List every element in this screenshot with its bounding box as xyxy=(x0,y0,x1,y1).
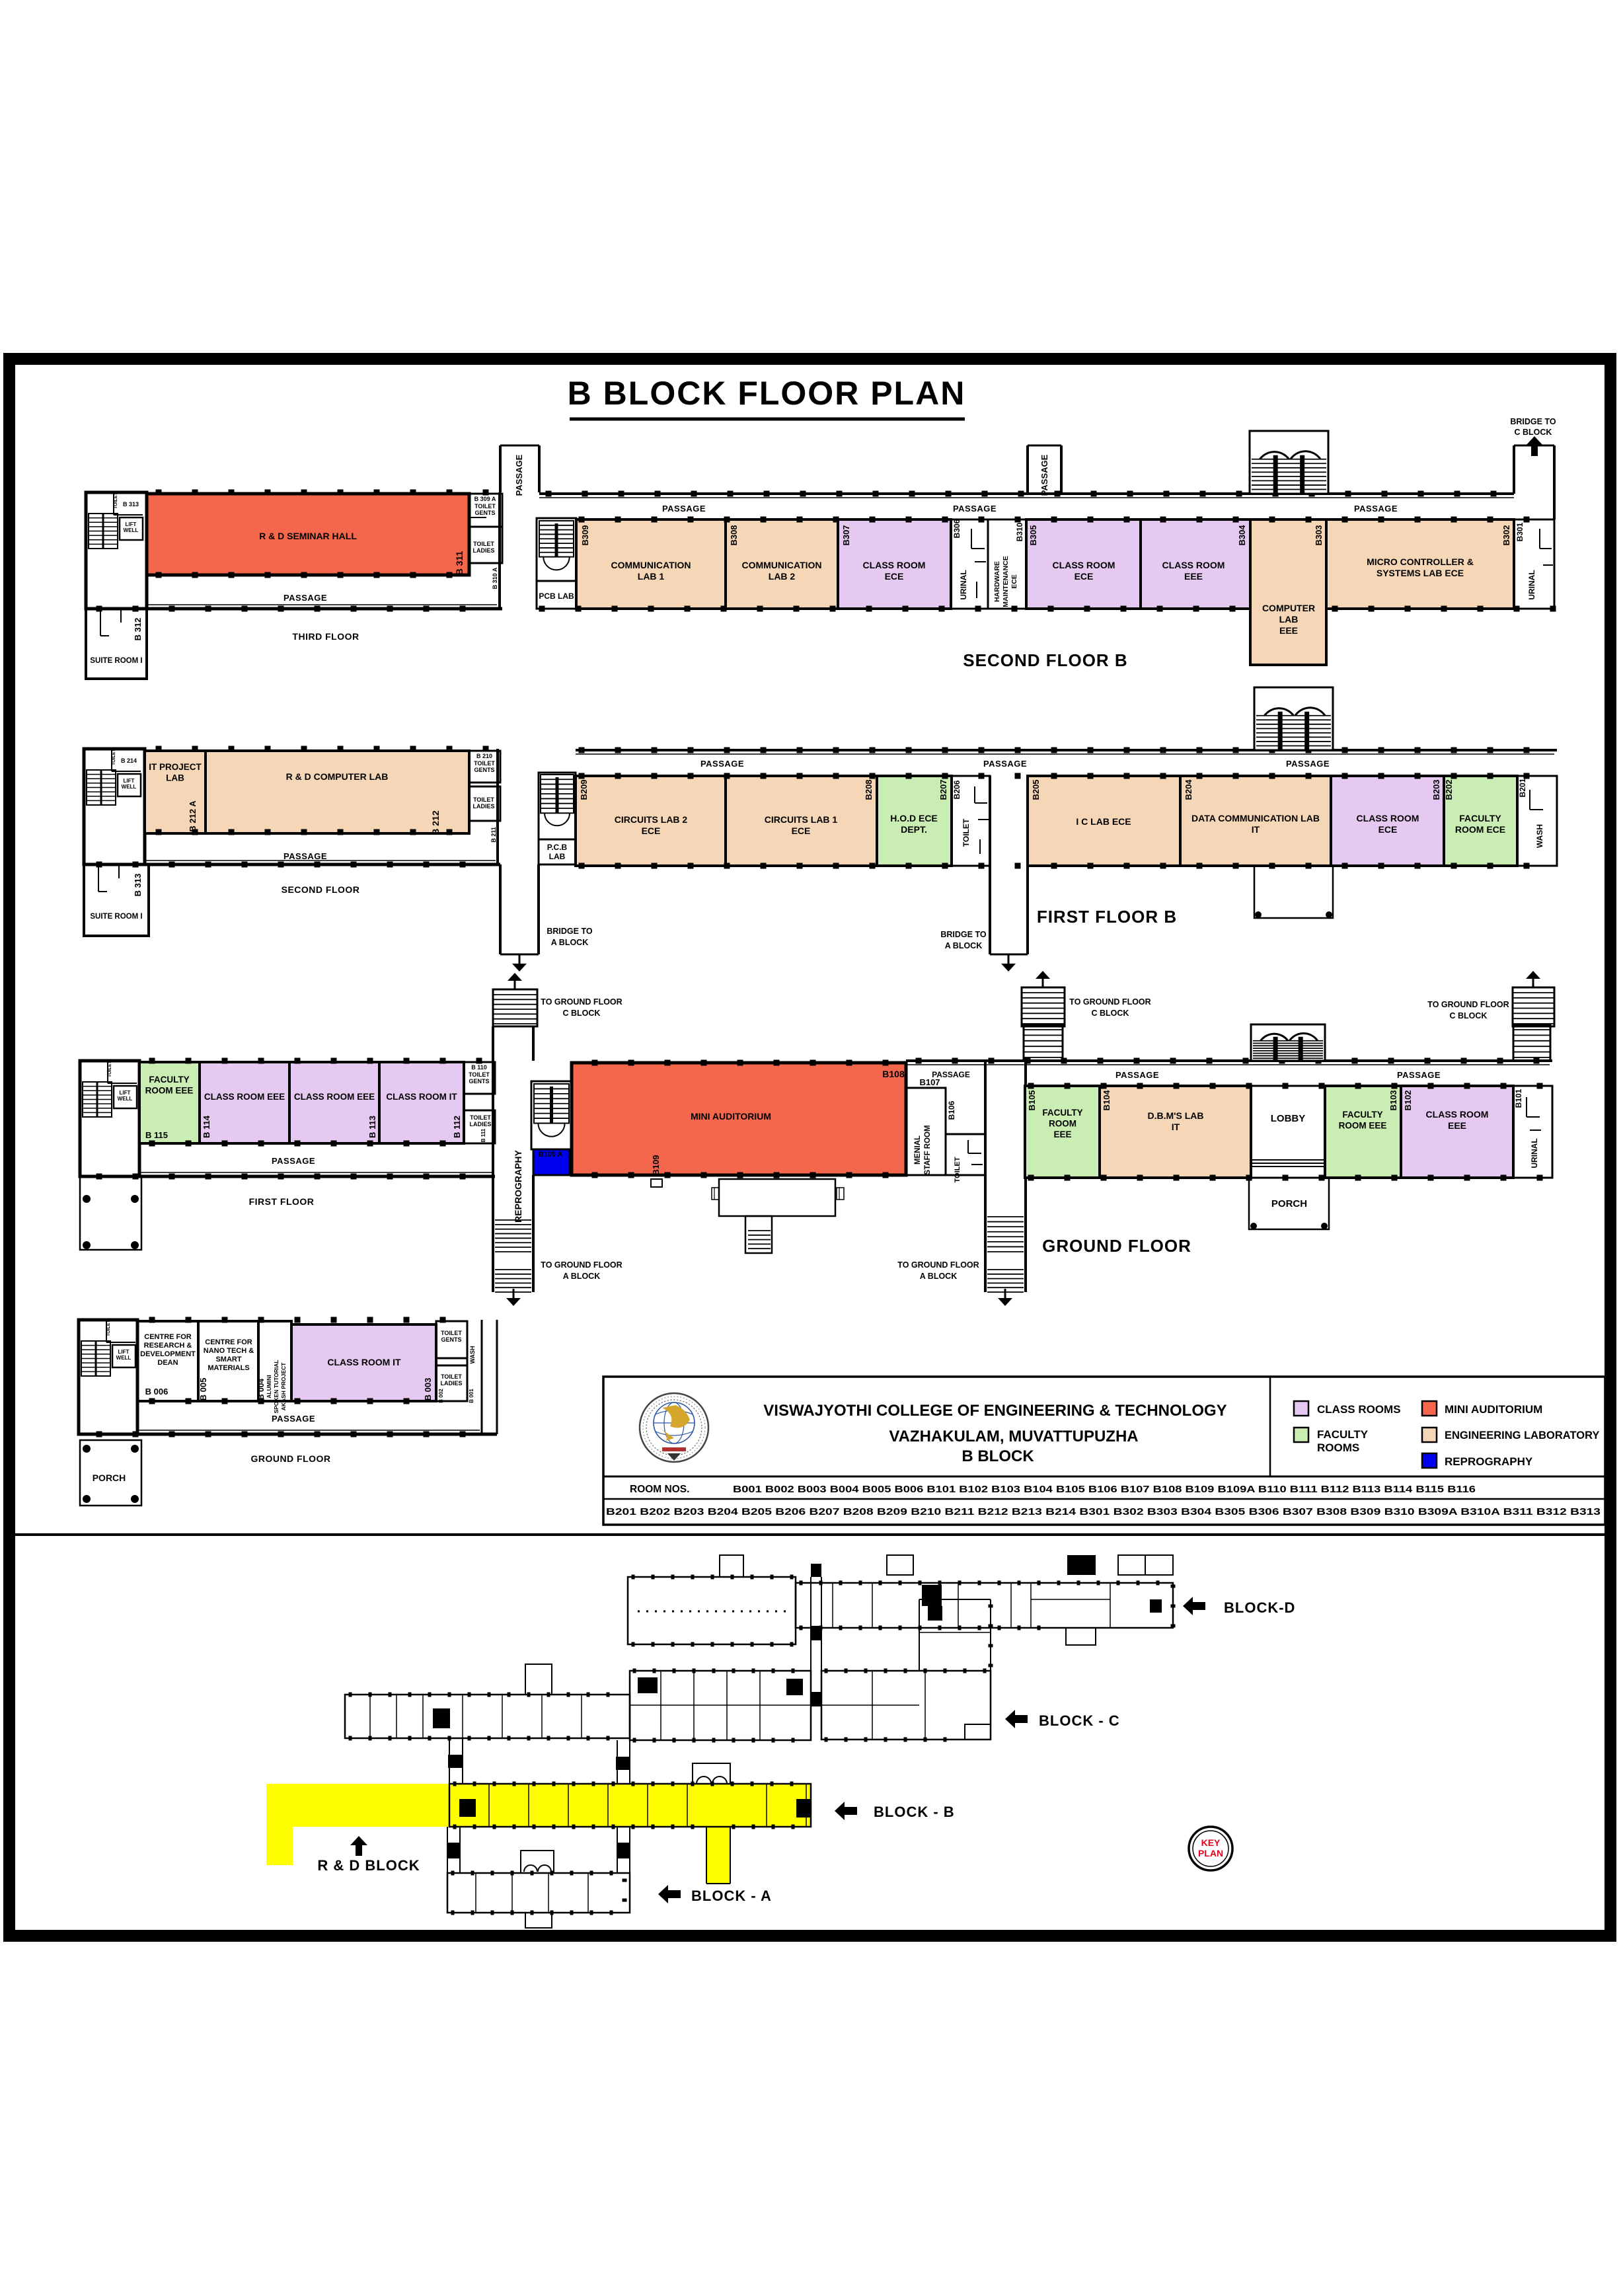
svg-text:PASSAGE: PASSAGE xyxy=(272,1414,315,1424)
svg-text:TOILET: TOILET xyxy=(962,818,971,847)
svg-text:WELL: WELL xyxy=(118,1096,133,1102)
svg-text:ROOM NOS.: ROOM NOS. xyxy=(630,1484,689,1495)
svg-text:TOILET: TOILET xyxy=(473,541,494,547)
svg-text:B309: B309 xyxy=(580,525,590,545)
svg-text:B 309 A: B 309 A xyxy=(474,496,496,502)
svg-text:ECE: ECE xyxy=(885,571,904,582)
svg-text:BLOCK-D: BLOCK-D xyxy=(1224,1599,1295,1616)
svg-text:DEPT.: DEPT. xyxy=(901,824,927,835)
svg-text:TOILET: TOILET xyxy=(114,492,118,509)
svg-text:PASSAGE: PASSAGE xyxy=(1115,1070,1159,1080)
svg-text:BRIDGE TO: BRIDGE TO xyxy=(547,927,592,936)
svg-text:B201 B202 B203 B204 B205: B201 B202 B203 B204 B205 B206 B207 B208 … xyxy=(606,1506,1601,1517)
svg-text:GROUND FLOOR: GROUND FLOOR xyxy=(1042,1236,1191,1256)
svg-text:GENTS: GENTS xyxy=(441,1336,461,1343)
svg-text:LIFT: LIFT xyxy=(124,778,135,784)
svg-text:BRIDGE TO: BRIDGE TO xyxy=(940,930,986,939)
svg-text:B304: B304 xyxy=(1237,525,1247,546)
svg-text:ENGINEERING LABORATORY: ENGINEERING LABORATORY xyxy=(1445,1430,1599,1441)
svg-text:CIRCUITS LAB 1: CIRCUITS LAB 1 xyxy=(765,814,838,825)
svg-text:D.B.M'S LAB: D.B.M'S LAB xyxy=(1148,1110,1204,1121)
svg-text:ROOM EEE: ROOM EEE xyxy=(145,1086,194,1096)
svg-text:A BLOCK: A BLOCK xyxy=(920,1272,957,1281)
svg-text:LADIES: LADIES xyxy=(440,1380,462,1387)
svg-text:B302: B302 xyxy=(1501,525,1511,545)
svg-text:ECE: ECE xyxy=(792,825,811,836)
svg-text:R & D COMPUTER LAB: R & D COMPUTER LAB xyxy=(286,771,389,782)
svg-text:DEVELOPMENT: DEVELOPMENT xyxy=(140,1350,196,1358)
svg-text:PORCH: PORCH xyxy=(93,1473,126,1483)
svg-text:C BLOCK: C BLOCK xyxy=(1092,1009,1129,1018)
svg-text:LAB: LAB xyxy=(1279,614,1299,625)
svg-text:VISWAJYOTHI COLLEGE OF ENGINEE: VISWAJYOTHI COLLEGE OF ENGINEERING & TEC… xyxy=(763,1402,1227,1420)
svg-text:B 113: B 113 xyxy=(367,1116,377,1138)
svg-text:LADIES: LADIES xyxy=(472,547,494,554)
svg-text:TOILET: TOILET xyxy=(112,749,116,765)
svg-text:IT: IT xyxy=(1252,824,1260,835)
svg-text:CLASS ROOM: CLASS ROOM xyxy=(1162,560,1225,570)
svg-text:ROOM ECE: ROOM ECE xyxy=(1455,824,1505,835)
svg-text:BRIDGE TO: BRIDGE TO xyxy=(1510,417,1556,426)
svg-text:CLASS ROOM: CLASS ROOM xyxy=(863,560,926,570)
svg-text:WELL: WELL xyxy=(116,1355,132,1361)
svg-text:B101: B101 xyxy=(1514,1089,1523,1108)
svg-text:SUITE ROOM I: SUITE ROOM I xyxy=(90,913,142,921)
svg-text:B 212 A: B 212 A xyxy=(188,800,198,832)
svg-text:B 114: B 114 xyxy=(202,1115,211,1138)
svg-text:CLASS ROOMS: CLASS ROOMS xyxy=(1317,1403,1401,1416)
svg-text:B307: B307 xyxy=(841,525,851,545)
svg-text:PLAN: PLAN xyxy=(1198,1848,1223,1858)
svg-text:B 112: B 112 xyxy=(452,1116,462,1138)
svg-text:TOILET: TOILET xyxy=(441,1330,462,1336)
svg-text:B206: B206 xyxy=(952,780,962,799)
svg-text:WASH: WASH xyxy=(1535,824,1544,848)
svg-text:B 310 A: B 310 A xyxy=(492,567,498,589)
svg-text:TO GROUND FLOOR: TO GROUND FLOOR xyxy=(1069,997,1151,1007)
svg-text:LOBBY: LOBBY xyxy=(1271,1113,1306,1124)
svg-text:AKASH PROJECT: AKASH PROJECT xyxy=(280,1362,287,1411)
svg-text:LAB: LAB xyxy=(166,773,184,783)
svg-text:PASSAGE: PASSAGE xyxy=(932,1070,970,1079)
svg-text:B305: B305 xyxy=(1028,525,1038,545)
svg-text:PASSAGE: PASSAGE xyxy=(1397,1070,1441,1080)
svg-text:B301: B301 xyxy=(1515,522,1525,541)
svg-text:B108: B108 xyxy=(882,1069,905,1079)
svg-text:I C LAB ECE: I C LAB ECE xyxy=(1076,816,1131,827)
svg-text:B310: B310 xyxy=(1015,522,1024,541)
svg-text:B 005: B 005 xyxy=(198,1378,208,1401)
svg-text:FACULTY: FACULTY xyxy=(1342,1110,1382,1120)
svg-text:CLASS ROOM EEE: CLASS ROOM EEE xyxy=(204,1092,285,1102)
svg-text:MINI AUDITORIUM: MINI AUDITORIUM xyxy=(691,1111,771,1122)
svg-text:B 003: B 003 xyxy=(423,1378,433,1401)
svg-text:GENTS: GENTS xyxy=(469,1078,489,1085)
svg-text:B308: B308 xyxy=(729,525,739,545)
svg-text:EEE: EEE xyxy=(1184,571,1203,582)
svg-text:TO GROUND FLOOR: TO GROUND FLOOR xyxy=(541,1260,622,1270)
svg-text:MICRO CONTROLLER &: MICRO CONTROLLER & xyxy=(1367,556,1474,567)
svg-text:LAB 2: LAB 2 xyxy=(769,571,796,582)
svg-text:ECE: ECE xyxy=(642,825,661,836)
svg-text:PASSAGE: PASSAGE xyxy=(700,759,744,769)
svg-text:TOILET: TOILET xyxy=(473,796,494,803)
svg-text:MAINTENANCE: MAINTENANCE xyxy=(1002,556,1010,607)
svg-text:B204: B204 xyxy=(1184,779,1193,800)
svg-text:LADIES: LADIES xyxy=(469,1121,491,1128)
svg-text:ECE: ECE xyxy=(1378,824,1398,835)
svg-text:DEAN: DEAN xyxy=(157,1359,178,1367)
svg-text:TOILET: TOILET xyxy=(441,1373,462,1380)
svg-text:C BLOCK: C BLOCK xyxy=(1450,1011,1488,1020)
svg-text:PASSAGE: PASSAGE xyxy=(953,504,997,514)
svg-text:BLOCK - B: BLOCK - B xyxy=(874,1804,955,1820)
svg-text:LADIES: LADIES xyxy=(472,803,494,810)
svg-text:URINAL: URINAL xyxy=(1527,570,1536,599)
svg-text:ROOMS: ROOMS xyxy=(1317,1441,1359,1454)
svg-text:WASH: WASH xyxy=(469,1346,476,1364)
svg-text:CLASS ROOM: CLASS ROOM xyxy=(1357,813,1419,823)
svg-text:COMPUTER: COMPUTER xyxy=(1262,603,1315,613)
svg-text:RESEARCH &: RESEARCH & xyxy=(144,1342,192,1350)
svg-text:CENTRE FOR: CENTRE FOR xyxy=(144,1333,192,1341)
svg-text:DATA COMMUNICATION LAB: DATA COMMUNICATION LAB xyxy=(1191,813,1320,823)
svg-text:PASSAGE: PASSAGE xyxy=(983,759,1027,769)
svg-text:VAZHAKULAM, MUVATTUPUZHA: VAZHAKULAM, MUVATTUPUZHA xyxy=(889,1428,1138,1445)
svg-text:C BLOCK: C BLOCK xyxy=(563,1009,601,1018)
svg-text:FACULTY: FACULTY xyxy=(1459,813,1501,823)
svg-text:CLASS ROOM: CLASS ROOM xyxy=(1426,1109,1489,1120)
svg-text:B201: B201 xyxy=(1518,778,1527,797)
svg-text:IT: IT xyxy=(1172,1122,1180,1132)
svg-text:LIFT: LIFT xyxy=(118,1349,130,1355)
svg-text:GENTS: GENTS xyxy=(474,767,494,773)
svg-text:PASSAGE: PASSAGE xyxy=(1354,504,1398,514)
svg-text:KEY: KEY xyxy=(1201,1837,1221,1848)
svg-text:COMMUNICATION: COMMUNICATION xyxy=(611,560,691,570)
svg-text:MINI AUDITORIUM: MINI AUDITORIUM xyxy=(1445,1403,1542,1416)
svg-text:LIFT: LIFT xyxy=(120,1090,131,1096)
svg-text:MENIAL: MENIAL xyxy=(914,1135,922,1165)
svg-text:A BLOCK: A BLOCK xyxy=(945,941,982,950)
svg-text:TO GROUND FLOOR: TO GROUND FLOOR xyxy=(541,997,622,1007)
svg-text:B106: B106 xyxy=(947,1100,956,1120)
svg-text:B 214: B 214 xyxy=(121,757,137,764)
svg-text:IT PROJECT: IT PROJECT xyxy=(149,762,202,772)
svg-text:B303: B303 xyxy=(1314,525,1324,545)
svg-text:WELL: WELL xyxy=(124,527,139,533)
svg-text:SECOND FLOOR B: SECOND FLOOR B xyxy=(963,650,1127,670)
svg-text:R & D SEMINAR HALL: R & D SEMINAR HALL xyxy=(259,531,357,541)
svg-text:B 210: B 210 xyxy=(476,753,492,759)
svg-text:REPROGRAPHY: REPROGRAPHY xyxy=(513,1149,523,1222)
svg-text:CLASS ROOM EEE: CLASS ROOM EEE xyxy=(294,1092,375,1102)
svg-text:HARDWARE: HARDWARE xyxy=(993,561,1001,602)
svg-text:TOILET: TOILET xyxy=(474,760,495,767)
svg-text:SMART: SMART xyxy=(215,1356,241,1363)
svg-text:EEE: EEE xyxy=(1053,1129,1071,1139)
svg-text:TOILET: TOILET xyxy=(954,1157,962,1182)
svg-text:CLASS ROOM: CLASS ROOM xyxy=(1053,560,1115,570)
svg-text:PCB LAB: PCB LAB xyxy=(539,592,574,601)
svg-text:REPROGRAPHY: REPROGRAPHY xyxy=(1445,1455,1533,1468)
svg-text:FACULTY: FACULTY xyxy=(1042,1108,1082,1118)
svg-text:B 006: B 006 xyxy=(145,1387,169,1397)
svg-text:TOILET: TOILET xyxy=(470,1114,491,1121)
svg-text:B205: B205 xyxy=(1031,779,1041,800)
svg-text:SUITE ROOM I: SUITE ROOM I xyxy=(90,657,142,665)
svg-text:C BLOCK: C BLOCK xyxy=(1515,428,1552,437)
svg-text:GROUND FLOOR: GROUND FLOOR xyxy=(250,1453,330,1464)
svg-text:B 115: B 115 xyxy=(145,1130,168,1140)
svg-text:TOILET: TOILET xyxy=(108,1061,112,1077)
svg-text:EEE: EEE xyxy=(1448,1120,1466,1131)
svg-text:FACULTY: FACULTY xyxy=(1317,1428,1369,1441)
svg-text:GENTS: GENTS xyxy=(474,510,495,516)
svg-text:MATERIALS: MATERIALS xyxy=(208,1364,249,1372)
svg-text:PASSAGE: PASSAGE xyxy=(514,454,524,496)
svg-text:PASSAGE: PASSAGE xyxy=(662,504,706,514)
svg-text:B104: B104 xyxy=(1102,1090,1112,1111)
svg-text:ROOM EEE: ROOM EEE xyxy=(1339,1121,1387,1131)
svg-text:BLOCK - A: BLOCK - A xyxy=(691,1888,772,1904)
svg-text:FIRST FLOOR: FIRST FLOOR xyxy=(249,1196,315,1207)
svg-text:B 313: B 313 xyxy=(123,501,139,508)
svg-text:B 312: B 312 xyxy=(133,618,143,641)
svg-text:B 211: B 211 xyxy=(490,827,497,843)
svg-text:LAB: LAB xyxy=(549,852,566,861)
svg-text:CENTRE FOR: CENTRE FOR xyxy=(205,1338,252,1346)
svg-text:B 001: B 001 xyxy=(469,1389,474,1403)
svg-text:URINAL: URINAL xyxy=(1530,1138,1539,1168)
svg-text:B109 A: B109 A xyxy=(539,1151,563,1159)
svg-text:STAFF ROOM: STAFF ROOM xyxy=(924,1125,932,1174)
svg-text:B306: B306 xyxy=(952,519,962,538)
svg-text:CIRCUITS LAB 2: CIRCUITS LAB 2 xyxy=(615,814,688,825)
svg-text:ECE: ECE xyxy=(1075,571,1094,582)
svg-text:TOILET: TOILET xyxy=(106,1320,111,1336)
svg-text:WELL: WELL xyxy=(122,784,137,790)
svg-text:B001 B002 B003 B004 B005: B001 B002 B003 B004 B005 B006 B101 B102 … xyxy=(733,1484,1476,1495)
svg-text:A BLOCK: A BLOCK xyxy=(551,938,588,947)
svg-text:B102: B102 xyxy=(1403,1090,1413,1110)
svg-text:SECOND FLOOR: SECOND FLOOR xyxy=(282,884,360,895)
svg-text:PASSAGE: PASSAGE xyxy=(272,1156,315,1166)
svg-text:BLOCK - C: BLOCK - C xyxy=(1039,1712,1120,1729)
svg-text:FIRST FLOOR B: FIRST FLOOR B xyxy=(1037,907,1177,927)
svg-text:B109: B109 xyxy=(651,1155,661,1175)
svg-text:B 111: B 111 xyxy=(480,1128,486,1142)
svg-text:B 212: B 212 xyxy=(430,810,441,835)
svg-text:PASSAGE: PASSAGE xyxy=(1039,454,1049,496)
svg-text:SYSTEMS LAB ECE: SYSTEMS LAB ECE xyxy=(1377,568,1464,578)
svg-text:ALUMINI: ALUMINI xyxy=(266,1375,272,1398)
svg-text:TOILET: TOILET xyxy=(469,1071,490,1078)
svg-text:B202: B202 xyxy=(1444,779,1454,800)
svg-text:B203: B203 xyxy=(1431,779,1441,800)
svg-text:TOILET: TOILET xyxy=(474,503,496,510)
svg-text:CLASS ROOM IT: CLASS ROOM IT xyxy=(386,1092,457,1102)
svg-text:COMMUNICATION: COMMUNICATION xyxy=(741,560,821,570)
svg-text:B BLOCK FLOOR PLAN: B BLOCK FLOOR PLAN xyxy=(568,375,966,412)
svg-text:B105: B105 xyxy=(1027,1090,1037,1110)
svg-text:FACULTY: FACULTY xyxy=(149,1075,189,1085)
svg-text:B103: B103 xyxy=(1388,1090,1398,1110)
svg-text:PASSAGE: PASSAGE xyxy=(283,593,327,603)
svg-text:P.C.B: P.C.B xyxy=(547,843,568,852)
svg-text:B 313: B 313 xyxy=(133,874,143,897)
svg-text:PASSAGE: PASSAGE xyxy=(283,851,327,861)
svg-text:H.O.D ECE: H.O.D ECE xyxy=(890,813,938,823)
svg-text:CLASS ROOM IT: CLASS ROOM IT xyxy=(327,1357,401,1367)
svg-text:B 311: B 311 xyxy=(454,551,465,575)
svg-text:B208: B208 xyxy=(864,779,874,800)
svg-text:TO GROUND FLOOR: TO GROUND FLOOR xyxy=(897,1260,979,1270)
svg-text:B 110: B 110 xyxy=(471,1064,487,1071)
svg-text:NANO TECH &: NANO TECH & xyxy=(204,1347,254,1355)
svg-text:EEE: EEE xyxy=(1279,625,1298,636)
svg-text:THIRD FLOOR: THIRD FLOOR xyxy=(292,631,359,642)
svg-text:PASSAGE: PASSAGE xyxy=(1286,759,1330,769)
svg-text:LAB 1: LAB 1 xyxy=(638,571,665,582)
svg-text:A BLOCK: A BLOCK xyxy=(563,1272,600,1281)
svg-text:SPOKEN TUTORIAL: SPOKEN TUTORIAL xyxy=(273,1359,280,1413)
svg-text:R & D BLOCK: R & D BLOCK xyxy=(317,1857,420,1874)
svg-text:PORCH: PORCH xyxy=(1271,1198,1307,1209)
svg-text:B BLOCK: B BLOCK xyxy=(962,1447,1034,1465)
svg-text:B207: B207 xyxy=(938,779,948,800)
svg-text:B209: B209 xyxy=(579,779,589,800)
svg-text:LIFT: LIFT xyxy=(126,521,137,527)
svg-text:B 004: B 004 xyxy=(256,1379,266,1400)
svg-text:ROOM: ROOM xyxy=(1049,1119,1076,1129)
svg-text:B 002: B 002 xyxy=(438,1389,444,1403)
svg-text:TO GROUND FLOOR: TO GROUND FLOOR xyxy=(1427,1000,1509,1009)
svg-text:ECE: ECE xyxy=(1010,574,1018,589)
svg-text:URINAL: URINAL xyxy=(959,570,968,599)
